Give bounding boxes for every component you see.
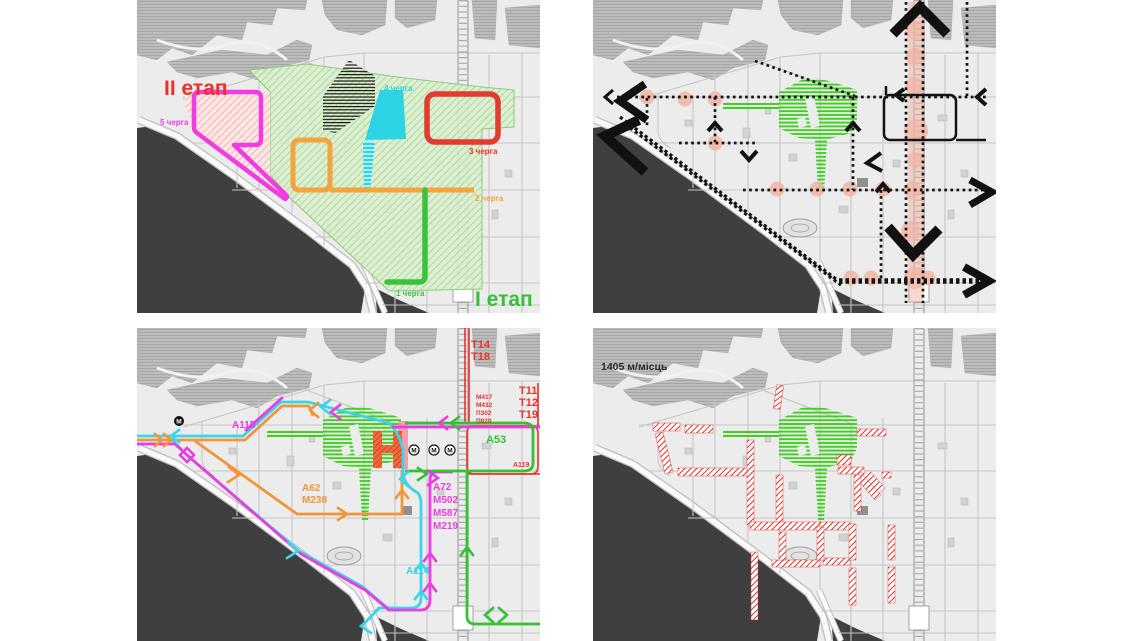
tram-label: Т12 [519,397,538,409]
panel-parking: 1405 м/місць [593,328,996,641]
route-label-m238: М238 [302,495,327,506]
route-label-a53: А53 [486,434,506,446]
route-label-a115: А115 [232,420,256,431]
tram-label: Т18 [471,351,490,363]
tram-label: Т19 [519,409,538,421]
route-label-a114: А114 [406,566,430,577]
route-label-m587: М587 [433,508,458,519]
bus-label: М432 [476,402,493,409]
svg-text:М: М [431,448,436,455]
svg-text:М: М [411,448,416,455]
route-label-m219: М219 [433,521,458,532]
stage1-label: І етап [475,288,533,311]
stage2-label: ІІ етап [164,77,228,100]
route-label-a119: А119 [513,462,529,469]
metro-icon: М [174,416,184,426]
svg-text:М: М [176,419,181,426]
metro-icon: М [429,445,439,455]
panel-transit-routes: М М М М Т14 Т18 М417 М432 П302 П820 Т11 … [137,328,540,641]
route-label-a72: А72 [433,482,452,493]
route-label-a62: А62 [302,483,321,494]
metro-icon: М [445,445,455,455]
bus-label: М417 [476,394,493,401]
queue5-label: 5 черга [160,118,189,127]
route-label-m502: М502 [433,495,458,506]
svg-text:М: М [447,448,452,455]
panel-construction-phases: ІІ етап 5 черга 4 черга 3 черга 2 черга … [137,0,540,313]
diagram-sheet: ІІ етап 5 черга 4 черга 3 черга 2 черга … [0,0,1140,641]
tram-label: Т14 [471,339,491,351]
bus-label: П820 [476,418,492,425]
tram-label: Т11 [519,385,537,397]
bus-label: П302 [476,410,492,417]
queue4-label: 4 черга [384,84,413,93]
queue3-label: 3 черга [469,147,498,156]
queue2-label: 2 черга [475,194,504,203]
panel-traffic-scheme [593,0,996,313]
metro-icon: М [409,445,419,455]
queue1-label: 1 черга [396,289,425,298]
parking-capacity-label: 1405 м/місць [601,361,668,373]
